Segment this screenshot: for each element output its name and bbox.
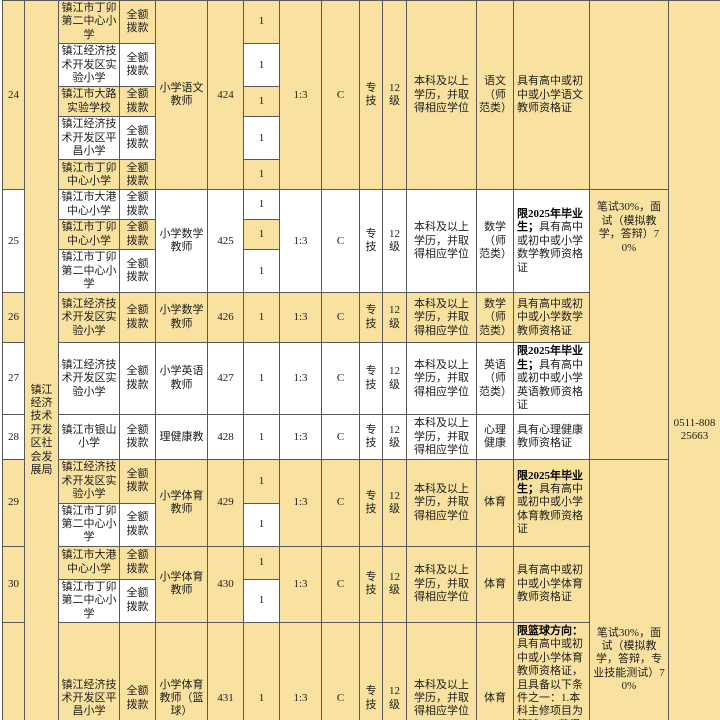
education-req: 本科及以上学历，并取得相应学位 xyxy=(407,546,477,622)
exam-category: C xyxy=(322,415,360,460)
exam-category: C xyxy=(322,623,360,720)
funding-type: 全额拨款 xyxy=(120,117,156,160)
row-no: 24 xyxy=(3,1,25,190)
post-type: 专技 xyxy=(360,623,383,720)
funding-type: 全额拨款 xyxy=(120,220,156,250)
education-req: 本科及以上学历，并取得相应学位 xyxy=(407,623,477,720)
post-type: 专技 xyxy=(360,415,383,460)
headcount: 1 xyxy=(244,579,280,622)
school-name: 镇江市银山小学 xyxy=(59,415,120,460)
qualification-req: 具有心理健康教师资格证 xyxy=(514,415,590,460)
open-ratio: 1:3 xyxy=(280,546,322,622)
school-name: 镇江市大港中心小学 xyxy=(59,546,120,579)
headcount: 1 xyxy=(244,250,280,293)
school-name: 镇江经济技术开发区平昌小学 xyxy=(59,117,120,160)
exam-subject: 数学（师范类） xyxy=(477,190,514,293)
post-type: 专技 xyxy=(360,546,383,622)
funding-type: 全额拨款 xyxy=(120,343,156,415)
exam-category: C xyxy=(322,460,360,546)
row-no: 30 xyxy=(3,546,25,622)
funding-type: 全额拨款 xyxy=(120,579,156,622)
headcount: 1 xyxy=(244,503,280,546)
exam-category: C xyxy=(322,343,360,415)
row-no xyxy=(3,623,25,720)
position-code: 426 xyxy=(208,293,244,343)
exam-method xyxy=(590,1,669,190)
position-code: 429 xyxy=(208,460,244,546)
school-name: 镇江市丁卯第二中心小学 xyxy=(59,1,120,44)
exam-subject: 数学（师范类） xyxy=(477,293,514,343)
post-type: 专技 xyxy=(360,293,383,343)
headcount: 1 xyxy=(244,546,280,579)
position-title: 小学体育教师（篮球） xyxy=(156,623,208,720)
education-req: 本科及以上学历，并取得相应学位 xyxy=(407,293,477,343)
exam-category: C xyxy=(322,190,360,293)
exam-method: 笔试30%，面试（模拟教学，答辩）70% xyxy=(590,190,669,460)
qualification-req: 具有高中或初中或小学语文教师资格证 xyxy=(514,1,590,190)
exam-subject: 英语（师范类） xyxy=(477,343,514,415)
school-name: 镇江经济技术开发区平昌小学 xyxy=(59,623,120,720)
position-title: 小学语文教师 xyxy=(156,1,208,190)
school-name: 镇江经济技术开发区实验小学 xyxy=(59,293,120,343)
headcount: 1 xyxy=(244,623,280,720)
position-title: 小学数学教师 xyxy=(156,293,208,343)
contact-phone: 0511-80825663 xyxy=(669,1,720,720)
school-name: 镇江经济技术开发区实验小学 xyxy=(59,44,120,87)
education-req: 本科及以上学历，并取得相应学位 xyxy=(407,460,477,546)
exam-subject: 体育 xyxy=(477,546,514,622)
open-ratio: 1:3 xyxy=(280,293,322,343)
agency-name: 镇江经济技术开发区社会发展局 xyxy=(25,1,59,720)
headcount: 1 xyxy=(244,293,280,343)
position-code: 428 xyxy=(208,415,244,460)
funding-type: 全额拨款 xyxy=(120,1,156,44)
post-type: 专技 xyxy=(360,460,383,546)
post-level: 12级 xyxy=(383,190,407,293)
funding-type: 全额拨款 xyxy=(120,44,156,87)
open-ratio: 1:3 xyxy=(280,623,322,720)
education-req: 本科及以上学历，并取得相应学位 xyxy=(407,190,477,293)
recruitment-table-page: 24 镇江经济技术开发区社会发展局 镇江市丁卯第二中心小学 全额拨款 小学语文教… xyxy=(0,0,720,720)
education-req: 本科及以上学历，并取得相应学位 xyxy=(407,1,477,190)
exam-category: C xyxy=(322,546,360,622)
headcount: 1 xyxy=(244,160,280,190)
position-title: 小学体育教师 xyxy=(156,546,208,622)
qualification-req: 限2025年毕业生；具有高中或初中或小学体育教师资格证 xyxy=(514,460,590,546)
school-name: 镇江经济技术开发区实验小学 xyxy=(59,343,120,415)
position-code: 424 xyxy=(208,1,244,190)
funding-type: 全额拨款 xyxy=(120,190,156,220)
school-name: 镇江市丁卯中心小学 xyxy=(59,160,120,190)
headcount: 1 xyxy=(244,87,280,117)
post-type: 专技 xyxy=(360,1,383,190)
open-ratio: 1:3 xyxy=(280,190,322,293)
row-no: 29 xyxy=(3,460,25,546)
post-level: 12级 xyxy=(383,1,407,190)
funding-type: 全额拨款 xyxy=(120,415,156,460)
post-level: 12级 xyxy=(383,293,407,343)
qualification-req: 限2025年毕业生；具有高中或初中或小学数学教师资格证 xyxy=(514,190,590,293)
headcount: 1 xyxy=(244,415,280,460)
post-level: 12级 xyxy=(383,546,407,622)
school-name: 镇江市丁卯第二中心小学 xyxy=(59,250,120,293)
position-title: 小学体育教师 xyxy=(156,460,208,546)
position-code: 427 xyxy=(208,343,244,415)
headcount: 1 xyxy=(244,190,280,220)
school-name: 镇江市丁卯第二中心小学 xyxy=(59,503,120,546)
funding-type: 全额拨款 xyxy=(120,623,156,720)
funding-type: 全额拨款 xyxy=(120,87,156,117)
exam-subject: 体育 xyxy=(477,623,514,720)
school-name: 镇江市大路实验学校 xyxy=(59,87,120,117)
headcount: 1 xyxy=(244,117,280,160)
position-code: 425 xyxy=(208,190,244,293)
post-type: 专技 xyxy=(360,343,383,415)
post-level: 12级 xyxy=(383,460,407,546)
school-name: 镇江市丁卯中心小学 xyxy=(59,220,120,250)
education-req: 本科及以上学历，并取得相应学位 xyxy=(407,415,477,460)
school-name: 镇江经济技术开发区实验小学 xyxy=(59,460,120,503)
headcount: 1 xyxy=(244,1,280,44)
funding-type: 全额拨款 xyxy=(120,250,156,293)
qualification-req: 具有高中或初中或小学数学教师资格证 xyxy=(514,293,590,343)
school-name: 镇江市丁卯第二中心小学 xyxy=(59,579,120,622)
open-ratio: 1:3 xyxy=(280,343,322,415)
school-name: 镇江市大港中心小学 xyxy=(59,190,120,220)
education-req: 本科及以上学历，并取得相应学位 xyxy=(407,343,477,415)
post-level: 12级 xyxy=(383,623,407,720)
funding-type: 全额拨款 xyxy=(120,160,156,190)
exam-category: C xyxy=(322,1,360,190)
funding-type: 全额拨款 xyxy=(120,293,156,343)
row-no: 26 xyxy=(3,293,25,343)
position-title: 理健康教 xyxy=(156,415,208,460)
headcount: 1 xyxy=(244,460,280,503)
open-ratio: 1:3 xyxy=(280,1,322,190)
open-ratio: 1:3 xyxy=(280,460,322,546)
exam-category: C xyxy=(322,293,360,343)
qualification-req: 限篮球方向：具有高中或初中或小学体育教师资格证，且具备以下条件之一：1.本科主修… xyxy=(514,623,590,720)
exam-method: 笔试30%，面试（模拟教学，答辩，专业技能测试）70% xyxy=(590,460,669,720)
headcount: 1 xyxy=(244,44,280,87)
exam-subject: 心理健康 xyxy=(477,415,514,460)
post-level: 12级 xyxy=(383,415,407,460)
exam-subject: 语文（师范类） xyxy=(477,1,514,190)
recruitment-table: 24 镇江经济技术开发区社会发展局 镇江市丁卯第二中心小学 全额拨款 小学语文教… xyxy=(2,0,720,720)
post-level: 12级 xyxy=(383,343,407,415)
headcount: 1 xyxy=(244,220,280,250)
funding-type: 全额拨款 xyxy=(120,460,156,503)
headcount: 1 xyxy=(244,343,280,415)
position-code: 430 xyxy=(208,546,244,622)
position-code: 431 xyxy=(208,623,244,720)
row-no: 27 xyxy=(3,343,25,415)
row-no: 25 xyxy=(3,190,25,293)
funding-type: 全额拨款 xyxy=(120,503,156,546)
qualification-req: 具有高中或初中或小学体育教师资格证 xyxy=(514,546,590,622)
row-no: 28 xyxy=(3,415,25,460)
position-title: 小学数学教师 xyxy=(156,190,208,293)
qualification-req: 限2025年毕业生；具有高中或初中或小学英语教师资格证 xyxy=(514,343,590,415)
post-type: 专技 xyxy=(360,190,383,293)
position-title: 小学英语教师 xyxy=(156,343,208,415)
funding-type: 全额拨款 xyxy=(120,546,156,579)
exam-subject: 体育 xyxy=(477,460,514,546)
open-ratio: 1:3 xyxy=(280,415,322,460)
